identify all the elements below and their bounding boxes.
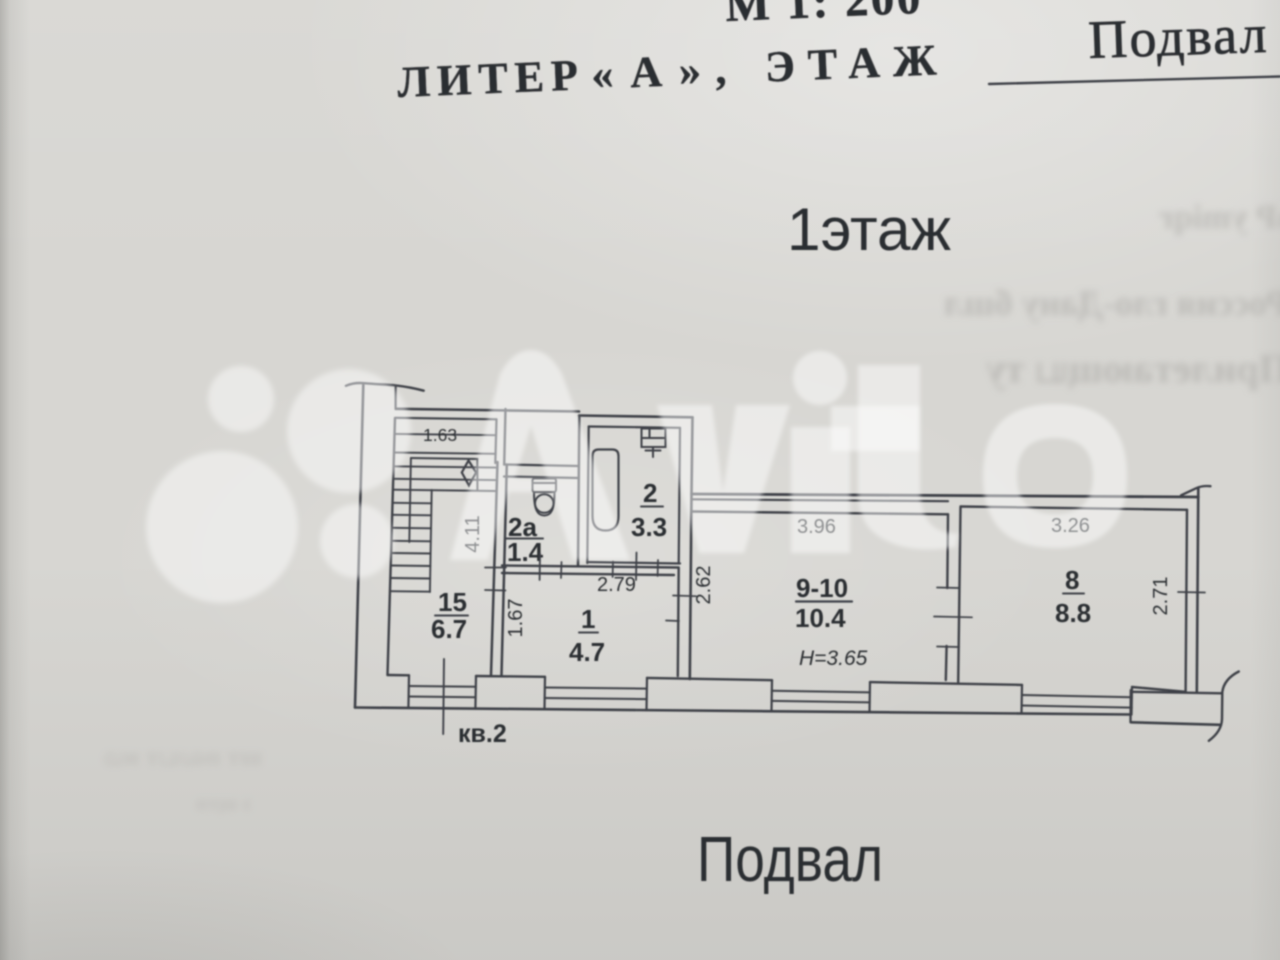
svg-text:1: 1 xyxy=(581,604,595,634)
svg-text:15: 15 xyxy=(438,587,467,617)
svg-text:8.8: 8.8 xyxy=(1055,598,1091,628)
svg-text:квР уmiqr: квР уmiqr xyxy=(1159,199,1280,236)
svg-text:1.4: 1.4 xyxy=(507,537,544,567)
svg-text:Россия гло-Дану бшл: Россия гло-Дану бшл xyxy=(944,283,1280,323)
svg-text:Подвал: Подвал xyxy=(697,823,883,895)
svg-text:6.7: 6.7 xyxy=(431,614,467,644)
svg-text:8: 8 xyxy=(1065,565,1079,595)
svg-text:2: 2 xyxy=(643,478,657,508)
svg-text:2.71: 2.71 xyxy=(1150,577,1172,616)
svg-text:М 1: 200: М 1: 200 xyxy=(724,0,924,32)
svg-text:4.7: 4.7 xyxy=(569,637,605,667)
svg-text:2.62: 2.62 xyxy=(693,566,715,605)
svg-text:1этаж: 1этаж xyxy=(787,196,951,263)
svg-text:1.67: 1.67 xyxy=(505,599,527,638)
svg-text:Н=3.65: Н=3.65 xyxy=(799,647,868,670)
svg-text:10.4: 10.4 xyxy=(795,603,846,633)
svg-text:2.79: 2.79 xyxy=(597,574,636,596)
svg-text:Прилетающய ту: Прилетающய ту xyxy=(986,346,1280,391)
svg-text:,: , xyxy=(714,44,727,93)
svg-text:з щтп: з щтп xyxy=(195,790,252,815)
svg-text:шт пவயт нம: шт пவயт нம xyxy=(103,742,262,771)
svg-text:« А »: « А » xyxy=(590,45,705,99)
svg-text:кв.2: кв.2 xyxy=(458,720,507,748)
svg-text:ЛИТЕР: ЛИТЕР xyxy=(396,50,585,107)
svg-text:9-10: 9-10 xyxy=(796,573,848,603)
svg-text:3.3: 3.3 xyxy=(631,512,667,542)
svg-text:1.63: 1.63 xyxy=(423,425,457,445)
svg-text:Подвал: Подвал xyxy=(1087,4,1269,70)
svg-text:ЭТАЖ: ЭТАЖ xyxy=(764,35,950,92)
